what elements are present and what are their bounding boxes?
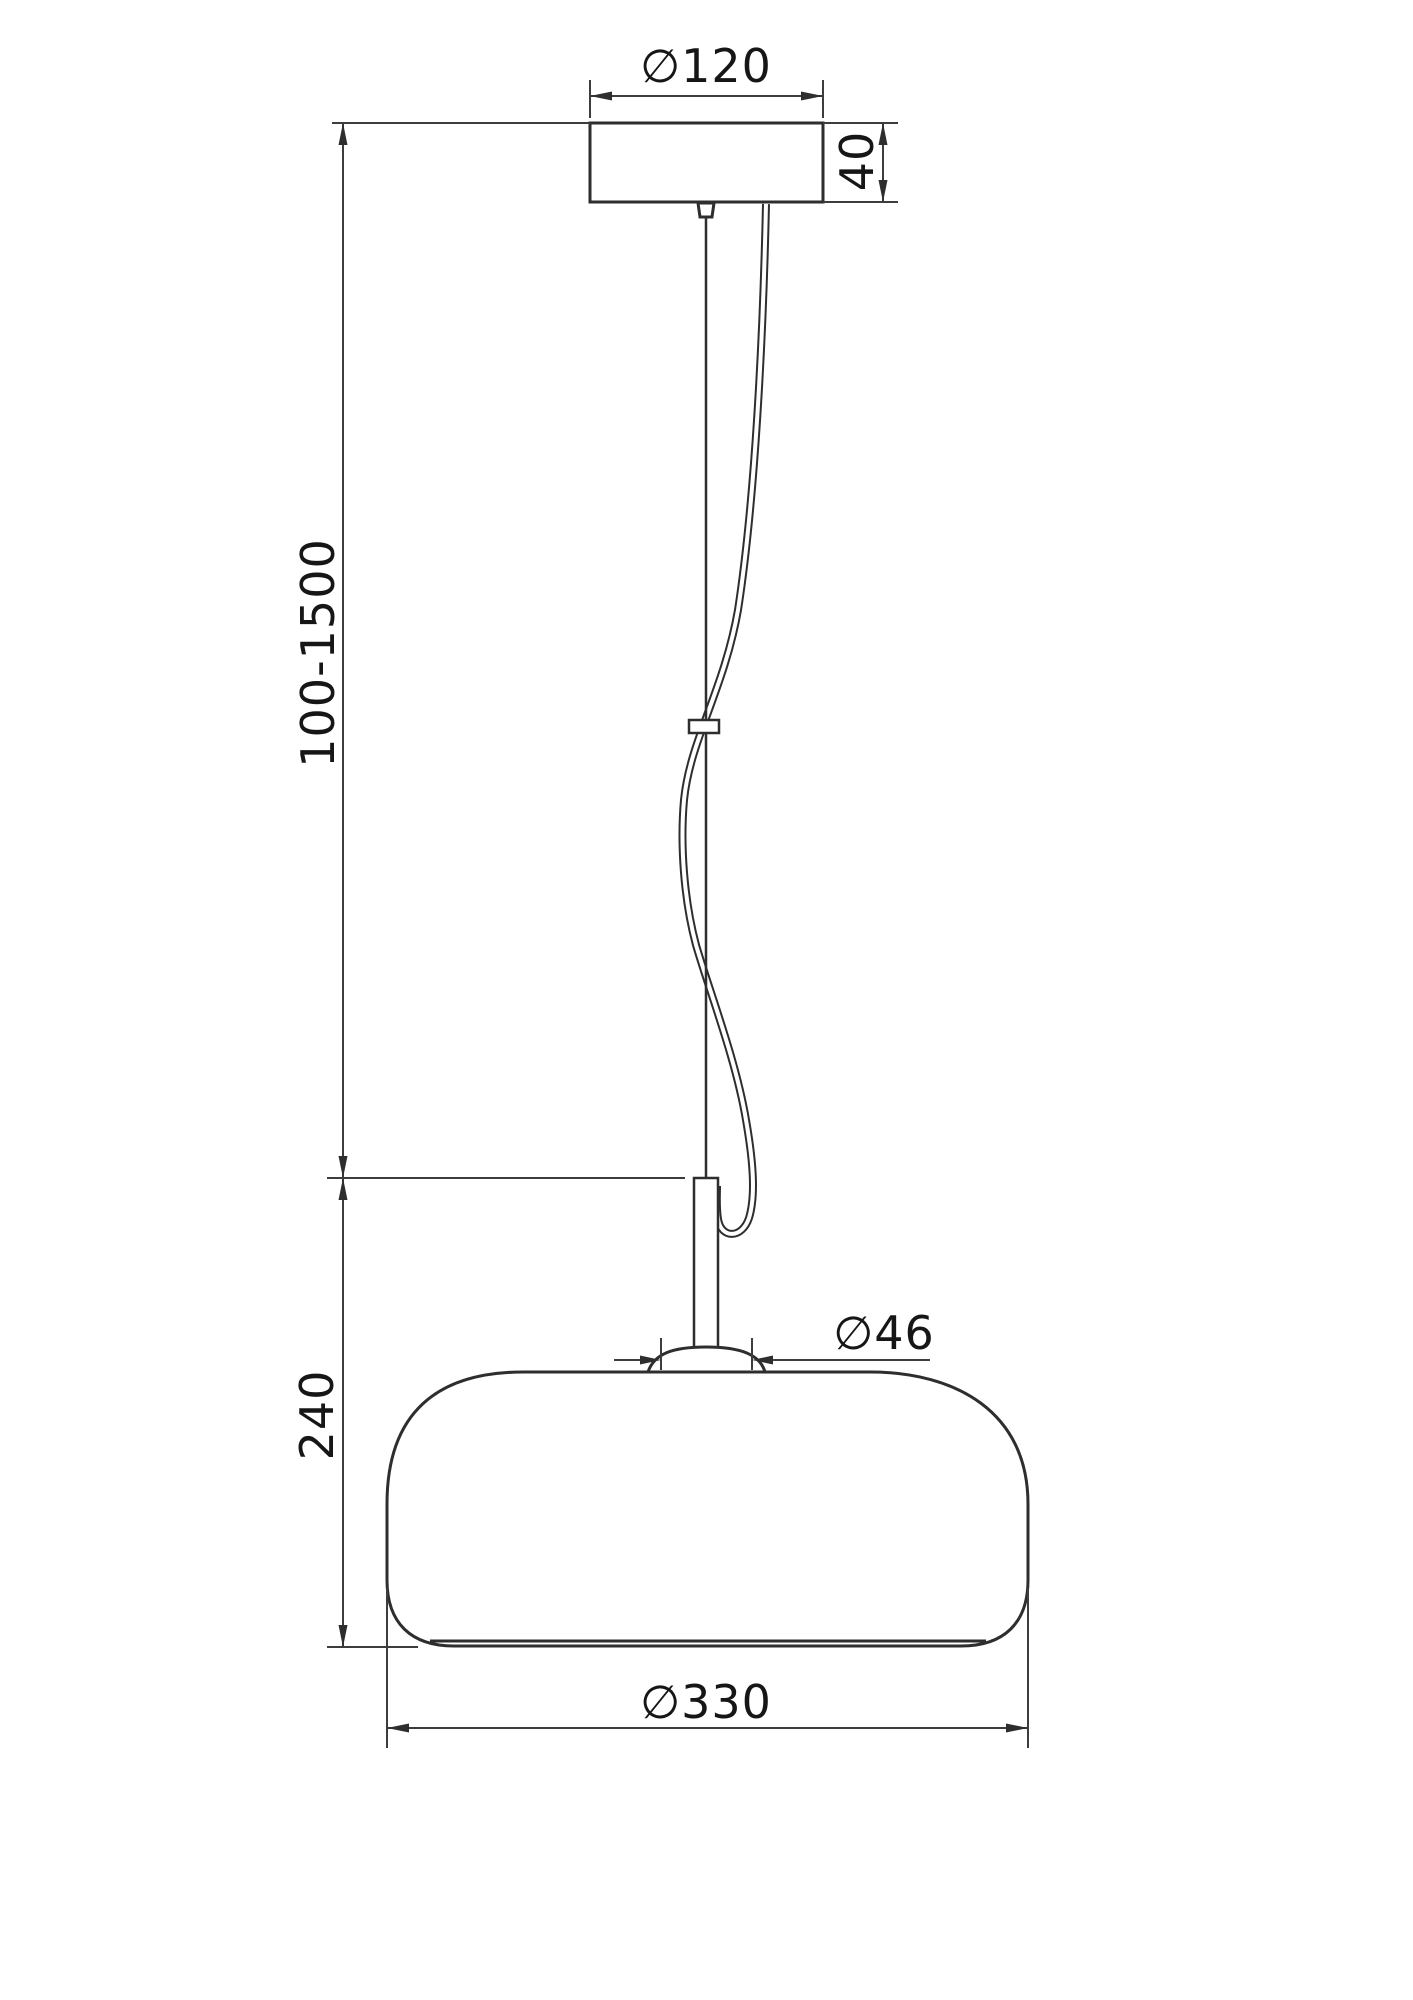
stem	[694, 1178, 718, 1354]
cable-gland	[698, 203, 714, 217]
label-body-height: 240	[291, 1265, 343, 1565]
ceiling-canopy	[590, 123, 823, 217]
label-suspension-range: 100-1500	[292, 503, 344, 803]
label-shade-diameter: ∅330	[606, 1676, 806, 1728]
cable-clip	[689, 720, 719, 733]
label-socket-diameter: ∅46	[784, 1307, 984, 1359]
socket-dome	[648, 1347, 765, 1372]
label-canopy-height: 40	[831, 86, 883, 236]
technical-drawing-canvas: ∅120 40 100-1500 240 ∅46 ∅330	[0, 0, 1413, 2000]
lamp-shade	[387, 1372, 1028, 1646]
label-canopy-diameter: ∅120	[556, 40, 856, 92]
dimension-suspension-range	[327, 123, 685, 1178]
